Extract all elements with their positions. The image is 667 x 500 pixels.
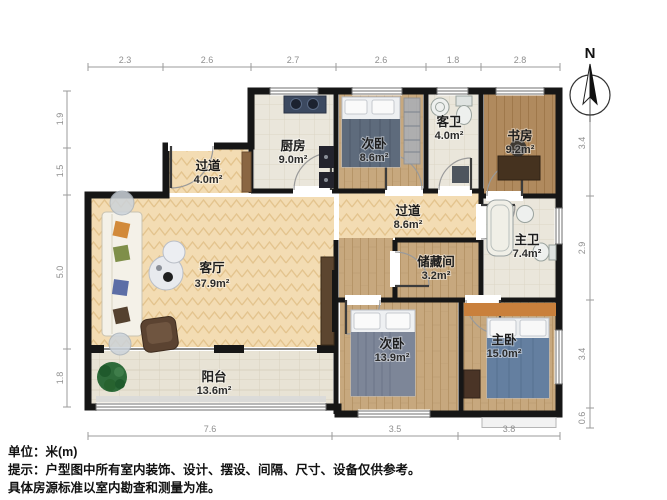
master-bedroom-area: 15.0m² <box>487 348 522 360</box>
guest-bath-window <box>437 87 468 96</box>
dim-line-bottom <box>88 432 560 440</box>
study-area: 9.2m² <box>506 144 535 156</box>
dim-bottom-0: 7.6 <box>204 424 217 434</box>
tv-cabinet <box>321 257 336 345</box>
bedroom-bottom-name: 次卧 <box>379 336 405 351</box>
side-table-bottom <box>109 333 131 355</box>
guest-bath-sink <box>431 98 449 116</box>
study-name: 书房 <box>507 128 532 143</box>
balcony-name: 阳台 <box>201 369 226 384</box>
guest-bath-name: 客卫 <box>435 114 462 129</box>
master-bath-sink <box>517 206 534 223</box>
dim-right-2: 3.4 <box>577 348 587 361</box>
bedroom-bottom-area: 13.9m² <box>375 352 410 364</box>
side-table-top <box>110 191 134 215</box>
bedroom-top-window <box>352 87 402 96</box>
master-bedroom-window <box>555 330 564 384</box>
balcony-area: 13.6m² <box>197 385 232 397</box>
footer-notes: 单位：米(m) 提示：户型图中所有室内装饰、设计、摆设、间隔、尺寸、设备仅供参考… <box>8 443 421 497</box>
master-bath-area: 7.4m² <box>513 248 542 260</box>
shoe-cabinet <box>242 152 251 192</box>
plant <box>97 362 127 392</box>
ac-ledge <box>482 418 556 428</box>
master-bedroom-name: 主卧 <box>491 332 517 347</box>
disclaimer-line2: 具体房源标准以室内勘查和测量为准。 <box>8 479 421 497</box>
armchair <box>140 316 179 354</box>
unit-note: 单位：米(m) <box>8 443 421 461</box>
storage-area: 3.2m² <box>422 270 451 282</box>
dim-left-2: 5.0 <box>55 266 65 279</box>
dim-line-top <box>88 63 560 71</box>
dim-line-left <box>63 91 71 407</box>
kitchen-name: 厨房 <box>280 138 305 153</box>
dim-right-0: 3.4 <box>577 137 587 150</box>
dim-left-0: 1.9 <box>55 113 65 126</box>
hallway-name: 过道 <box>395 203 421 218</box>
sofa <box>102 212 142 336</box>
storage-name: 储藏间 <box>416 254 455 269</box>
hallway-connector-floor <box>339 238 393 299</box>
living-room-name: 客厅 <box>198 260 225 275</box>
entry-hall-area: 4.0m² <box>194 174 223 186</box>
kitchen-window <box>270 87 318 96</box>
compass-needle-icon <box>583 64 590 104</box>
disclaimer-line1: 提示：户型图中所有室内装饰、设计、摆设、间隔、尺寸、设备仅供参考。 <box>8 461 421 479</box>
bedroom-bottom-window <box>358 410 430 419</box>
entry-hall-name: 过道 <box>195 158 221 173</box>
dim-top-2: 2.7 <box>287 55 300 65</box>
guest-bath-area: 4.0m² <box>435 130 464 142</box>
drying-rack <box>404 98 420 164</box>
dim-left-3: 1.8 <box>55 372 65 385</box>
kitchen-area: 9.0m² <box>279 154 308 166</box>
dim-left-1: 1.5 <box>55 165 65 178</box>
dim-top-3: 2.6 <box>375 55 388 65</box>
dim-right-3: 0.6 <box>577 412 587 425</box>
living-room-area: 37.9m² <box>195 278 230 290</box>
bathtub <box>487 200 513 256</box>
master-bath-window <box>555 208 564 244</box>
dim-bottom-1: 3.5 <box>389 424 402 434</box>
dim-line-right <box>586 91 594 428</box>
dresser <box>464 370 480 398</box>
dim-right-1: 2.9 <box>577 242 587 255</box>
compass: N <box>570 45 610 122</box>
hallway-area: 8.6m² <box>394 219 423 231</box>
north-label: N <box>585 45 596 62</box>
dim-top-0: 2.3 <box>119 55 132 65</box>
dim-top-4: 1.8 <box>447 55 460 65</box>
compass-needle-dark <box>590 64 597 104</box>
study-window <box>496 87 544 96</box>
balcony-glazing <box>96 396 326 412</box>
washer <box>452 166 469 183</box>
bedroom-top-area: 8.6m² <box>360 152 389 164</box>
floor-plan-canvas: 过道 4.0m² 厨房 9.0m² 次卧 8.6m² 客卫 4.0m² 书房 9… <box>0 0 667 500</box>
kitchen-counter <box>319 146 334 188</box>
bedroom-top-name: 次卧 <box>361 136 387 151</box>
dim-top-5: 2.8 <box>514 55 527 65</box>
master-bath-name: 主卫 <box>514 232 540 247</box>
floor-plan-page: 过道 4.0m² 厨房 9.0m² 次卧 8.6m² 客卫 4.0m² 书房 9… <box>0 0 667 500</box>
dim-top-1: 2.6 <box>201 55 214 65</box>
stove <box>284 96 326 113</box>
dim-bottom-2: 3.8 <box>503 424 516 434</box>
